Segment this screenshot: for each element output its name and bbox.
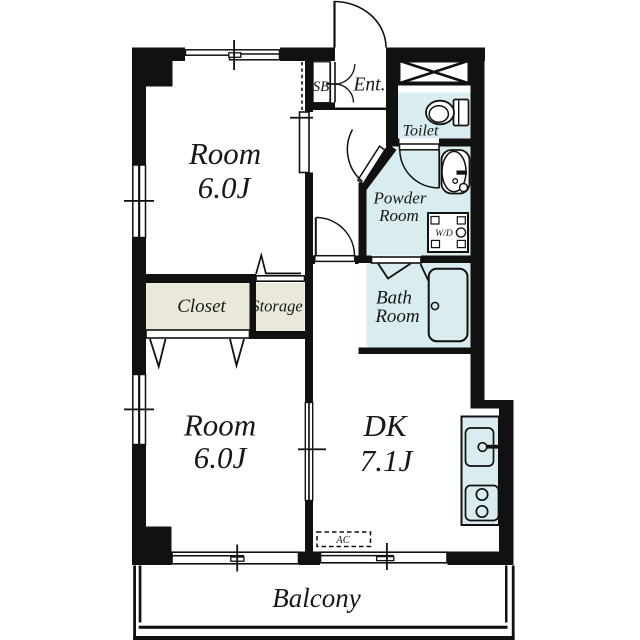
svg-text:6.0J: 6.0J <box>194 440 248 475</box>
svg-text:DK: DK <box>362 408 408 443</box>
svg-text:Room: Room <box>378 206 419 225</box>
svg-text:7.1J: 7.1J <box>360 443 414 478</box>
svg-text:Powder: Powder <box>373 189 427 208</box>
svg-text:W/D: W/D <box>435 229 453 239</box>
svg-text:6.0J: 6.0J <box>198 170 252 205</box>
svg-text:Room: Room <box>188 136 261 171</box>
svg-text:Ent.: Ent. <box>353 75 386 96</box>
svg-text:Room: Room <box>374 306 419 327</box>
svg-text:Closet: Closet <box>177 296 226 317</box>
svg-text:AC: AC <box>335 535 350 546</box>
svg-text:SB: SB <box>313 79 330 95</box>
svg-text:Toilet: Toilet <box>403 123 439 140</box>
svg-text:Balcony: Balcony <box>272 583 360 613</box>
svg-text:Room: Room <box>183 408 256 443</box>
svg-text:Storage: Storage <box>251 297 302 316</box>
